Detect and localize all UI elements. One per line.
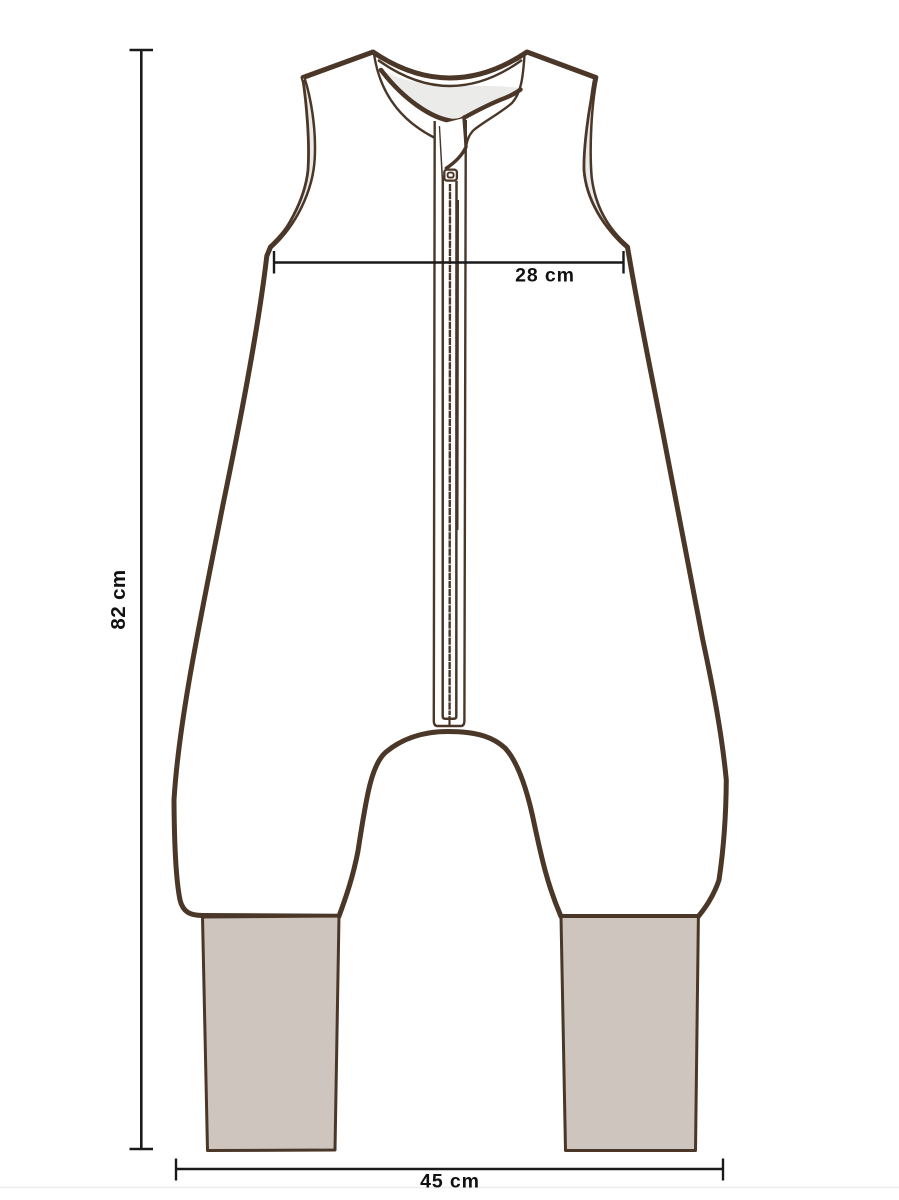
svg-text:82 cm: 82 cm [107, 569, 130, 629]
svg-text:45 cm: 45 cm [420, 1171, 480, 1193]
svg-text:28 cm: 28 cm [515, 265, 575, 287]
